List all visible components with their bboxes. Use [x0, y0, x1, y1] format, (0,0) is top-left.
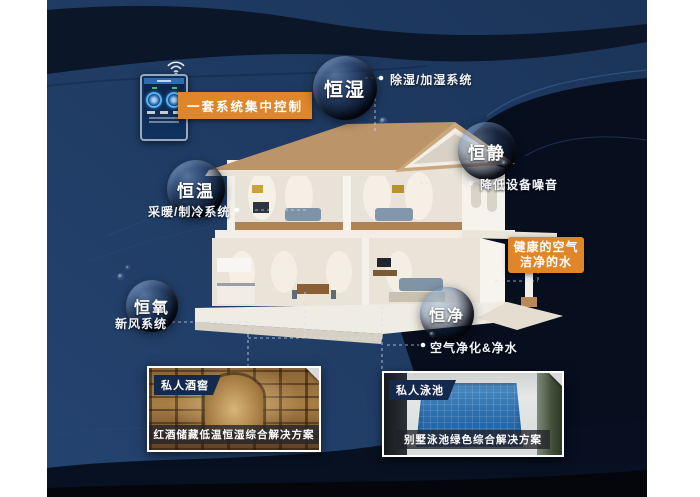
mini-bubble: [502, 161, 506, 165]
dining-table: [297, 284, 329, 294]
lower-right-exterior-wall: [480, 238, 505, 306]
right-wave-accent-line-1: [487, 70, 647, 116]
bubble-purity-label: 恒净: [429, 302, 465, 326]
wall-light-arch: [405, 172, 433, 220]
base-platform: [195, 302, 563, 334]
wall-light-arch: [363, 172, 391, 220]
photo-corner-fold: [306, 368, 319, 381]
tv-upper: [253, 202, 269, 213]
photo-pool: 私人泳池 别墅泳池绿色综合解决方案: [382, 371, 564, 457]
photo-tag-cellar: 私人酒窖: [154, 375, 221, 395]
kitchen-upper-cabinets: [217, 258, 251, 272]
bed-upper-right: [375, 208, 413, 221]
bubble-quiet-label: 恒静: [468, 139, 506, 164]
photo-wine-cellar: 私人酒窖 红酒储藏低温恒湿综合解决方案: [147, 366, 321, 452]
right-wave-accent-line-2: [525, 137, 647, 156]
photo-caption-cellar: 红酒储藏低温恒湿综合解决方案: [147, 425, 321, 444]
control-label: 一套系统集中控制: [178, 92, 312, 119]
bubble-quiet: 恒静: [458, 122, 516, 180]
label-dehumidify-system: 除湿/加湿系统: [390, 71, 472, 88]
mini-bubble: [118, 274, 123, 279]
wall-light-arch: [271, 251, 297, 293]
upper-floor-interior: [232, 160, 462, 230]
bubble-humidity: 恒湿: [313, 56, 377, 120]
porch-column-base: [521, 297, 537, 307]
roof-main-slope: [209, 122, 455, 170]
photo-tag-pool: 私人泳池: [389, 380, 456, 400]
wall-light-arch: [285, 172, 313, 220]
kitchen-lower-cabinets: [217, 286, 255, 304]
bubble-purity: 恒净: [420, 287, 474, 341]
wall-light-arch: [248, 172, 276, 220]
photo-caption-pool: 别墅泳池绿色综合解决方案: [396, 430, 550, 449]
connector-dot-humidity: [379, 76, 384, 81]
connector-dot-temperature: [235, 208, 240, 213]
bubble-temperature-label: 恒温: [177, 177, 215, 202]
bubble-humidity-label: 恒湿: [324, 75, 366, 102]
highlight-box: 健康的空气 洁净的水: [508, 237, 584, 273]
label-fresh-air-system: 新风系统: [115, 315, 167, 332]
upper-wood-floor: [232, 222, 462, 230]
roof-eave: [205, 170, 399, 176]
connector-dot-purity: [421, 343, 426, 348]
tv-cabinet: [373, 270, 397, 276]
bed-upper-left: [285, 208, 321, 221]
mini-bubble: [430, 332, 434, 336]
phone-status-leds: [144, 87, 184, 89]
wall-art: [392, 185, 404, 193]
mini-bubble: [126, 266, 129, 269]
dining-chair: [331, 290, 336, 299]
bottom-black-strip: [47, 470, 647, 497]
phone-header-bar: [144, 78, 184, 84]
photo-corner-fold: [549, 373, 562, 386]
wall-light-arch: [326, 251, 352, 293]
connector-dot-quiet: [469, 181, 474, 186]
highlight-line2: 洁净的水: [510, 255, 582, 270]
base-front-skirt: [195, 322, 383, 344]
upper-divider-wall: [343, 160, 351, 230]
mid-floor-slab: [215, 230, 515, 238]
kitchen-counter: [217, 283, 255, 286]
infographic-canvas: 一套系统集中控制 恒湿 恒静 恒温 恒氧 恒净 除湿/加湿系统 降低设备噪音 采…: [47, 0, 647, 497]
highlight-line1: 健康的空气: [510, 240, 582, 255]
mini-bubble: [380, 118, 386, 124]
mid-accent-line-2: [87, 218, 267, 262]
wall-light-arch: [386, 251, 412, 293]
wall-art: [252, 185, 263, 193]
label-air-water-purification: 空气净化&净水: [430, 339, 518, 356]
label-noise-reduction: 降低设备噪音: [480, 176, 558, 193]
lower-divider-wall: [362, 238, 369, 306]
dial-icon: [146, 92, 162, 108]
dining-chair: [292, 290, 297, 299]
base-right-patio: [477, 302, 563, 330]
tv-lower: [377, 258, 391, 267]
wall-light-arch: [229, 251, 255, 293]
infographic-stage: 一套系统集中控制 恒湿 恒静 恒温 恒氧 恒净 除湿/加湿系统 降低设备噪音 采…: [0, 0, 700, 497]
label-heating-cooling-system: 采暖/制冷系统: [148, 203, 230, 220]
